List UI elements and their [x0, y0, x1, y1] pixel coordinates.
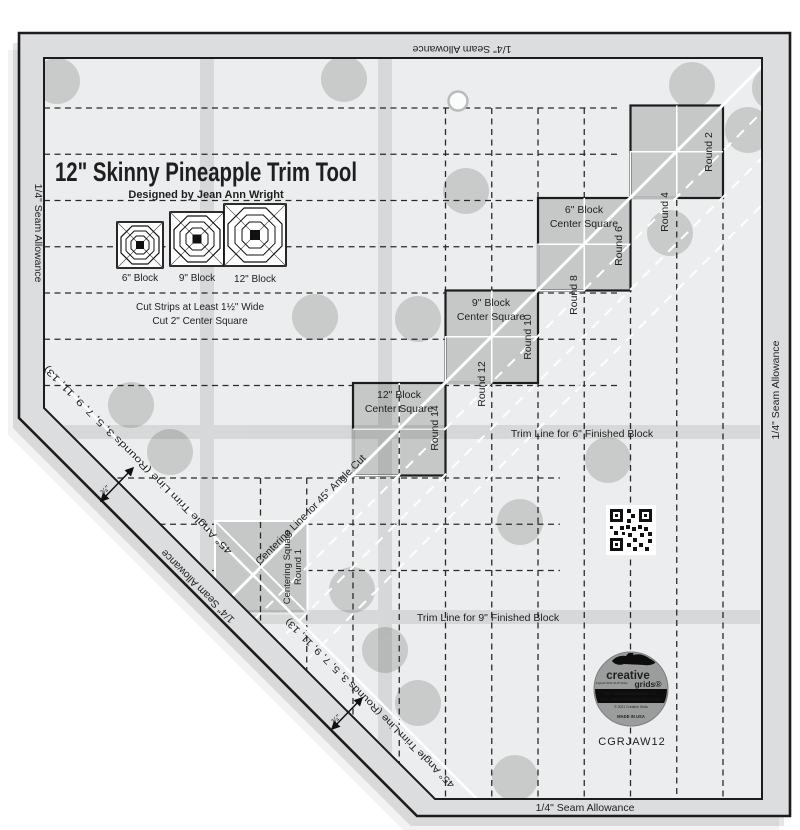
product-code: CGRJAW12	[598, 736, 666, 748]
seam-allowance-label-right: 1/4" Seam Allowance	[770, 340, 782, 439]
trim-line-6-label: Trim Line for 6" Finished Block	[511, 428, 654, 440]
grip-dot	[669, 62, 715, 108]
grip-dot	[395, 680, 441, 726]
badge-url-uk: UK - www.creativegrids.com	[605, 691, 658, 696]
round-label-8: Round 8	[568, 275, 580, 315]
block-icon-label-6: 6" Block	[122, 273, 159, 284]
grip-dot	[497, 499, 543, 545]
center-square-label-9-line2: Center Square	[457, 311, 525, 323]
badge-brand-bottom: grids®	[634, 679, 662, 689]
round-label-2: Round 2	[703, 132, 715, 172]
pineapple-block-icon-6	[117, 222, 163, 268]
pineapple-block-icon-12	[224, 204, 286, 266]
trim-band-vertical-6	[378, 58, 392, 799]
block-icon-center	[136, 241, 144, 249]
seam-allowance-label-top: 1/4" Seam Allowance	[412, 43, 511, 55]
pineapple-block-icon-9	[170, 212, 224, 266]
designer-credit: Designed by Jean Ann Wright	[128, 189, 284, 201]
round-label-12: Round 12	[476, 361, 488, 407]
round-label-4: Round 4	[659, 192, 671, 232]
grip-dot	[443, 168, 489, 214]
grip-dot	[292, 294, 338, 340]
block-icon-center	[193, 235, 202, 244]
round-label-14: Round 14	[429, 405, 441, 451]
badge-copyright: © 2021 Creative Grids	[614, 705, 648, 709]
grip-dot	[329, 567, 375, 613]
seam-allowance-label-left: 1/4" Seam Allowance	[32, 184, 44, 283]
badge-made-in: MADE IN USA	[617, 714, 645, 719]
block-icon-label-9: 9" Block	[179, 273, 216, 284]
instruction-line-1: Cut Strips at Least 1½" Wide	[136, 302, 264, 313]
hanging-hole	[449, 92, 468, 111]
trim-line-9-label: Trim Line for 9" Finished Block	[417, 612, 560, 624]
center-square-label-6-line2: Center Square	[550, 218, 618, 230]
instruction-line-2: Cut 2" Center Square	[152, 316, 248, 327]
round-label-6: Round 6	[613, 226, 625, 266]
qr-code	[606, 505, 656, 555]
center-square-label-12-line2: Center Square	[365, 403, 433, 415]
trim-band-9	[44, 610, 760, 624]
block-icon-center	[250, 230, 260, 240]
round-label-10: Round 10	[522, 314, 534, 360]
grip-dot	[321, 56, 367, 102]
center-square-label-6-line1: 6" Block	[565, 204, 604, 216]
product-image: 12" Skinny Pineapple Trim Tool Designed …	[0, 0, 800, 830]
badge-url-usa: USA - www.creativegridsusa.com	[600, 697, 662, 702]
seam-allowance-label-bottom: 1/4" Seam Allowance	[536, 802, 635, 814]
grip-dot	[108, 382, 154, 428]
page-title: 12" Skinny Pineapple Trim Tool	[55, 157, 357, 187]
centering-square-label-line2: Round 1	[293, 549, 304, 585]
grip-dot	[585, 437, 631, 483]
grip-dot	[492, 755, 538, 801]
center-square-label-9-line1: 9" Block	[472, 297, 511, 309]
block-icon-label-12: 12" Block	[234, 274, 277, 285]
grip-dot	[395, 296, 441, 342]
center-square-label-12-line1: 12" Block	[377, 389, 422, 401]
